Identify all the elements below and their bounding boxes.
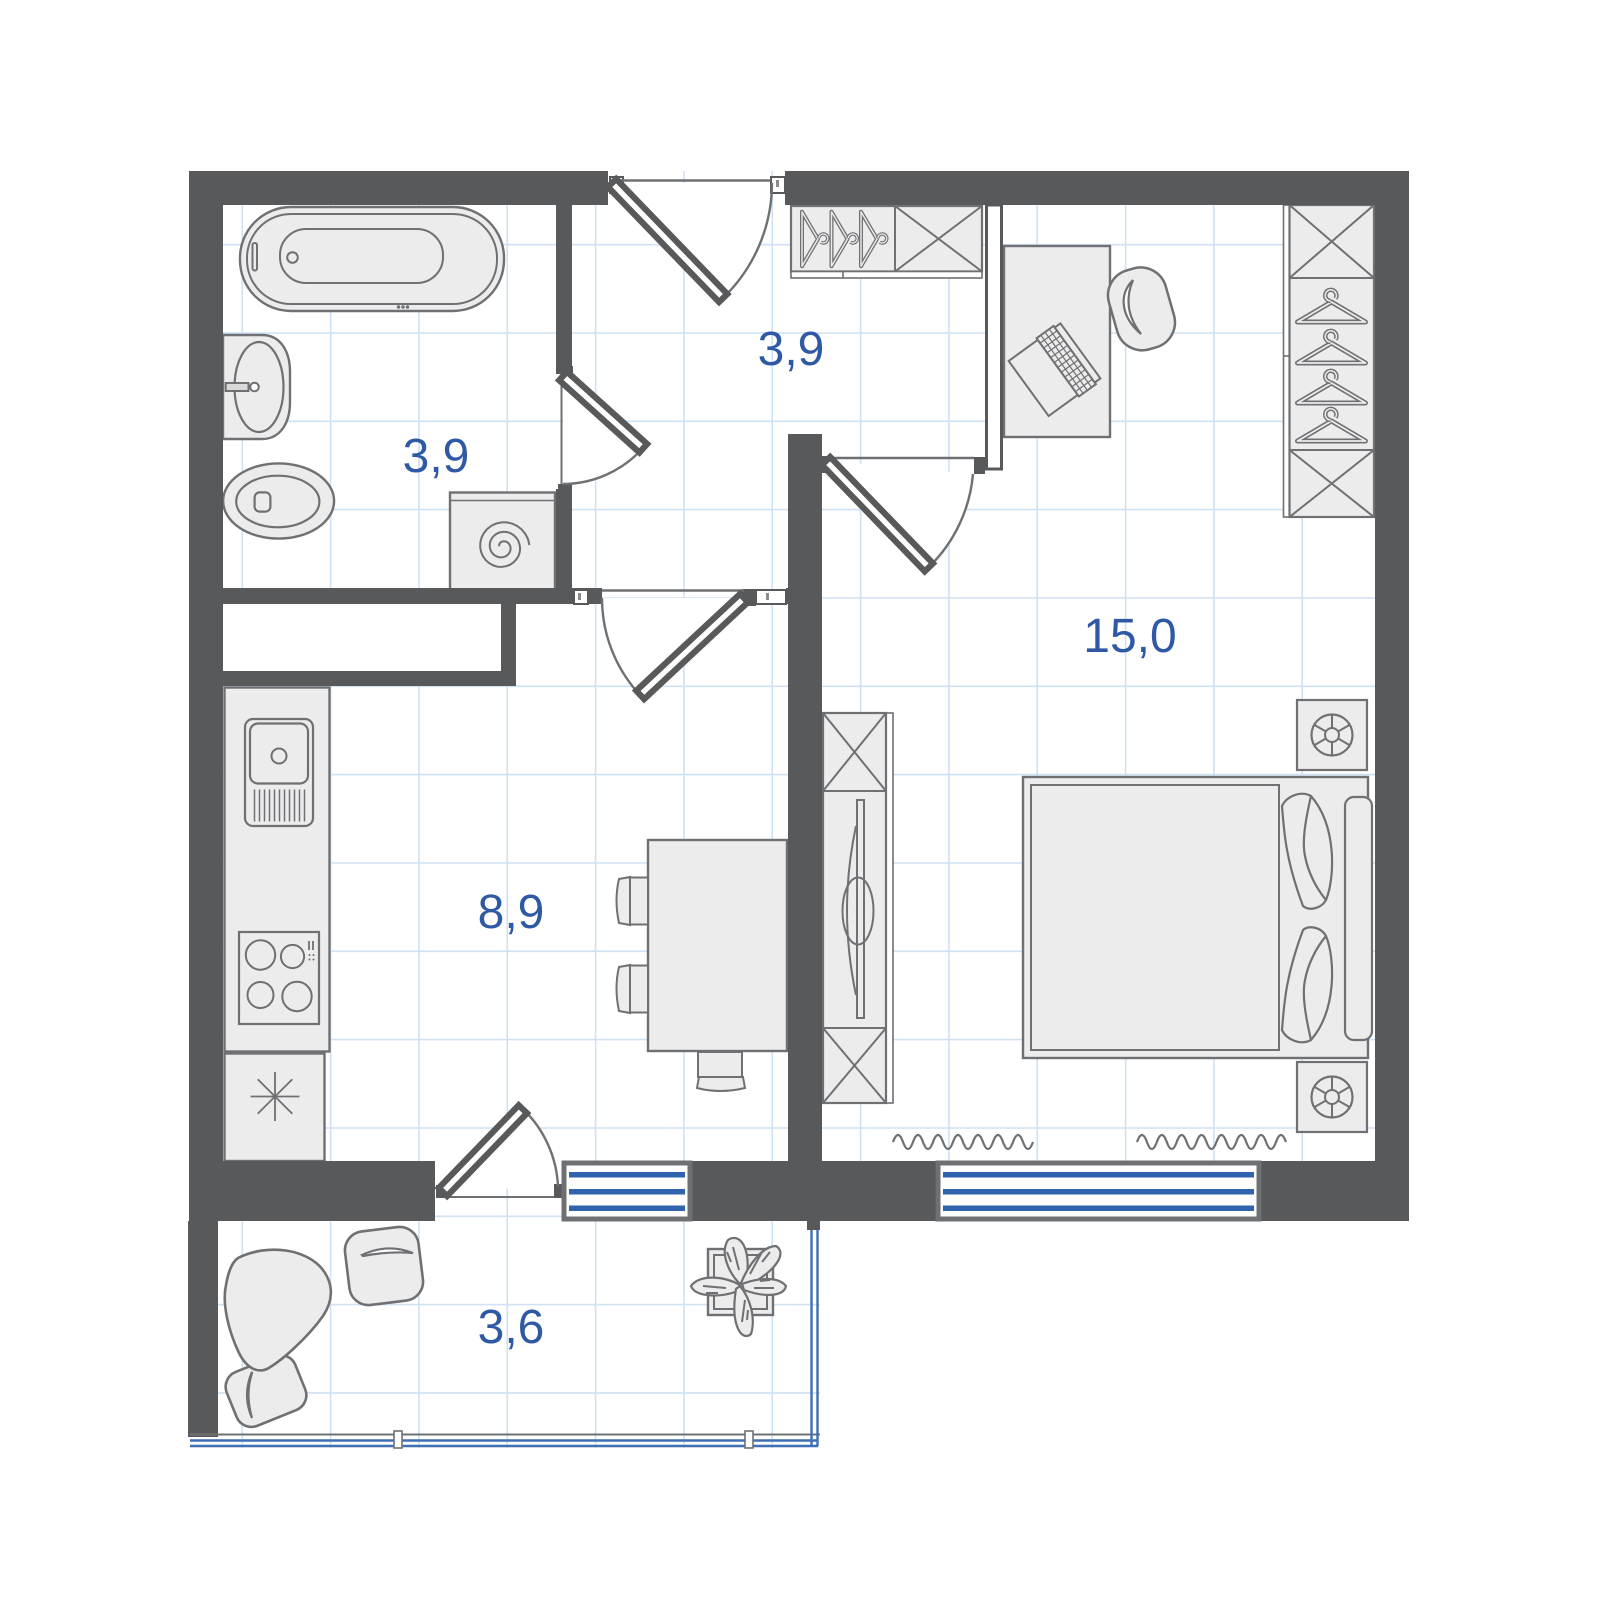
svg-text:3,9: 3,9 [403, 430, 470, 483]
svg-text:3,6: 3,6 [478, 1301, 545, 1354]
svg-text:3,9: 3,9 [758, 323, 825, 376]
svg-text:15,0: 15,0 [1083, 610, 1176, 663]
svg-text:8,9: 8,9 [478, 886, 545, 939]
